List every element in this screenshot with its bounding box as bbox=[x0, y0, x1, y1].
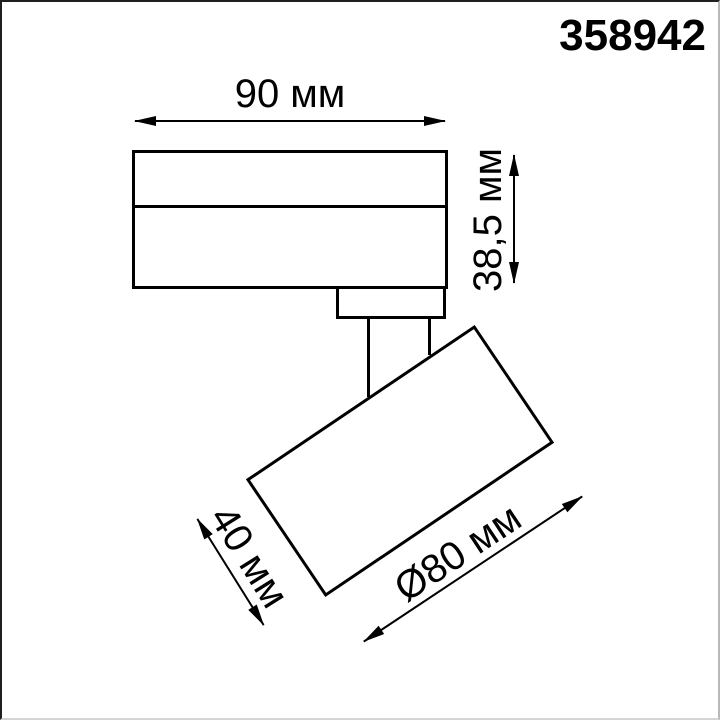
product-code: 358942 bbox=[559, 12, 706, 60]
diagram-page: 358942 90 мм 38,5 мм 40 мм Ø80 мм bbox=[0, 0, 720, 720]
track-housing-body bbox=[132, 150, 448, 289]
stem-left-line bbox=[367, 317, 370, 397]
arrowhead-right-icon bbox=[562, 492, 586, 513]
arrowhead-down-icon bbox=[509, 262, 519, 284]
arrowhead-up-icon bbox=[509, 154, 519, 176]
spotlight-head bbox=[246, 325, 554, 597]
height-dimension-arrow bbox=[513, 155, 515, 283]
housing-seam-line bbox=[135, 205, 445, 208]
width-dimension-arrow bbox=[135, 120, 445, 122]
stem-right-line bbox=[428, 317, 431, 355]
width-dimension-label: 90 мм bbox=[235, 74, 346, 114]
arrowhead-left-icon bbox=[134, 116, 156, 126]
arrowhead-left-icon bbox=[360, 626, 384, 647]
height-dimension-label: 38,5 мм bbox=[468, 148, 508, 292]
arrowhead-right-icon bbox=[424, 116, 446, 126]
track-adapter-block bbox=[336, 286, 446, 319]
